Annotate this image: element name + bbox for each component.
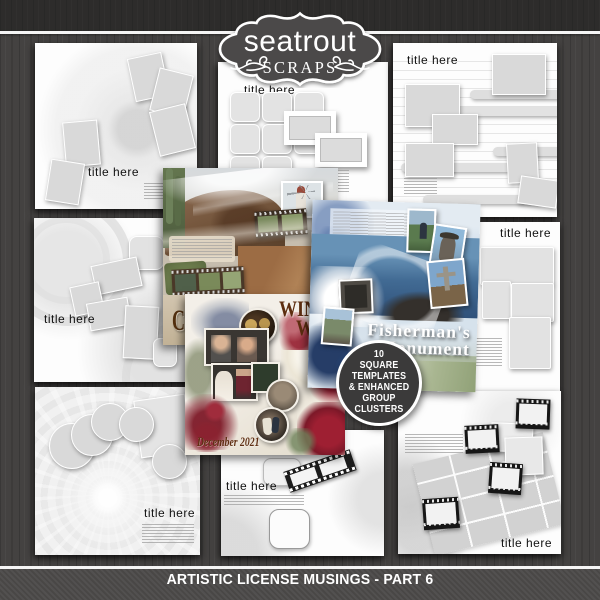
- svg-text:seatrout: seatrout: [244, 25, 357, 58]
- svg-text:SCRAPS: SCRAPS: [263, 58, 338, 77]
